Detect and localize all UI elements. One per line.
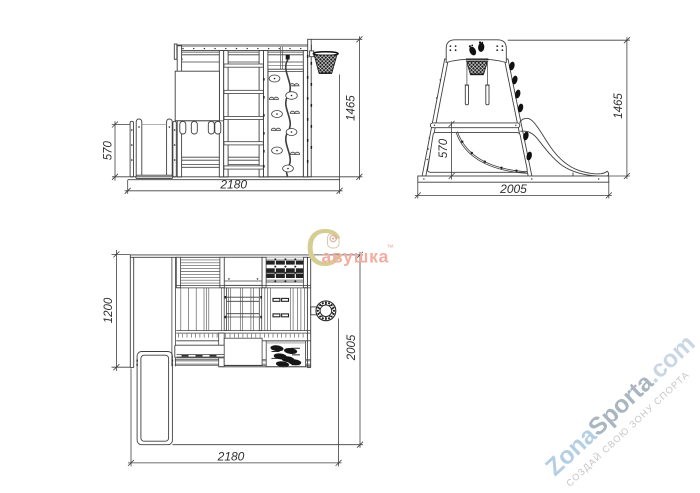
svg-text:авушка: авушка	[322, 247, 390, 267]
svg-text:1465: 1465	[613, 93, 625, 119]
svg-text:2005: 2005	[346, 334, 358, 361]
svg-text:570: 570	[103, 141, 115, 161]
svg-text:2180: 2180	[219, 177, 247, 191]
svg-text:™: ™	[387, 245, 394, 252]
svg-text:570: 570	[438, 138, 450, 158]
svg-text:ZonaSporta.com: ZonaSporta.com	[541, 330, 700, 482]
svg-text:1465: 1465	[346, 95, 358, 121]
svg-text:2180: 2180	[217, 449, 245, 463]
svg-text:1200: 1200	[103, 297, 115, 323]
svg-text:2005: 2005	[499, 182, 527, 196]
